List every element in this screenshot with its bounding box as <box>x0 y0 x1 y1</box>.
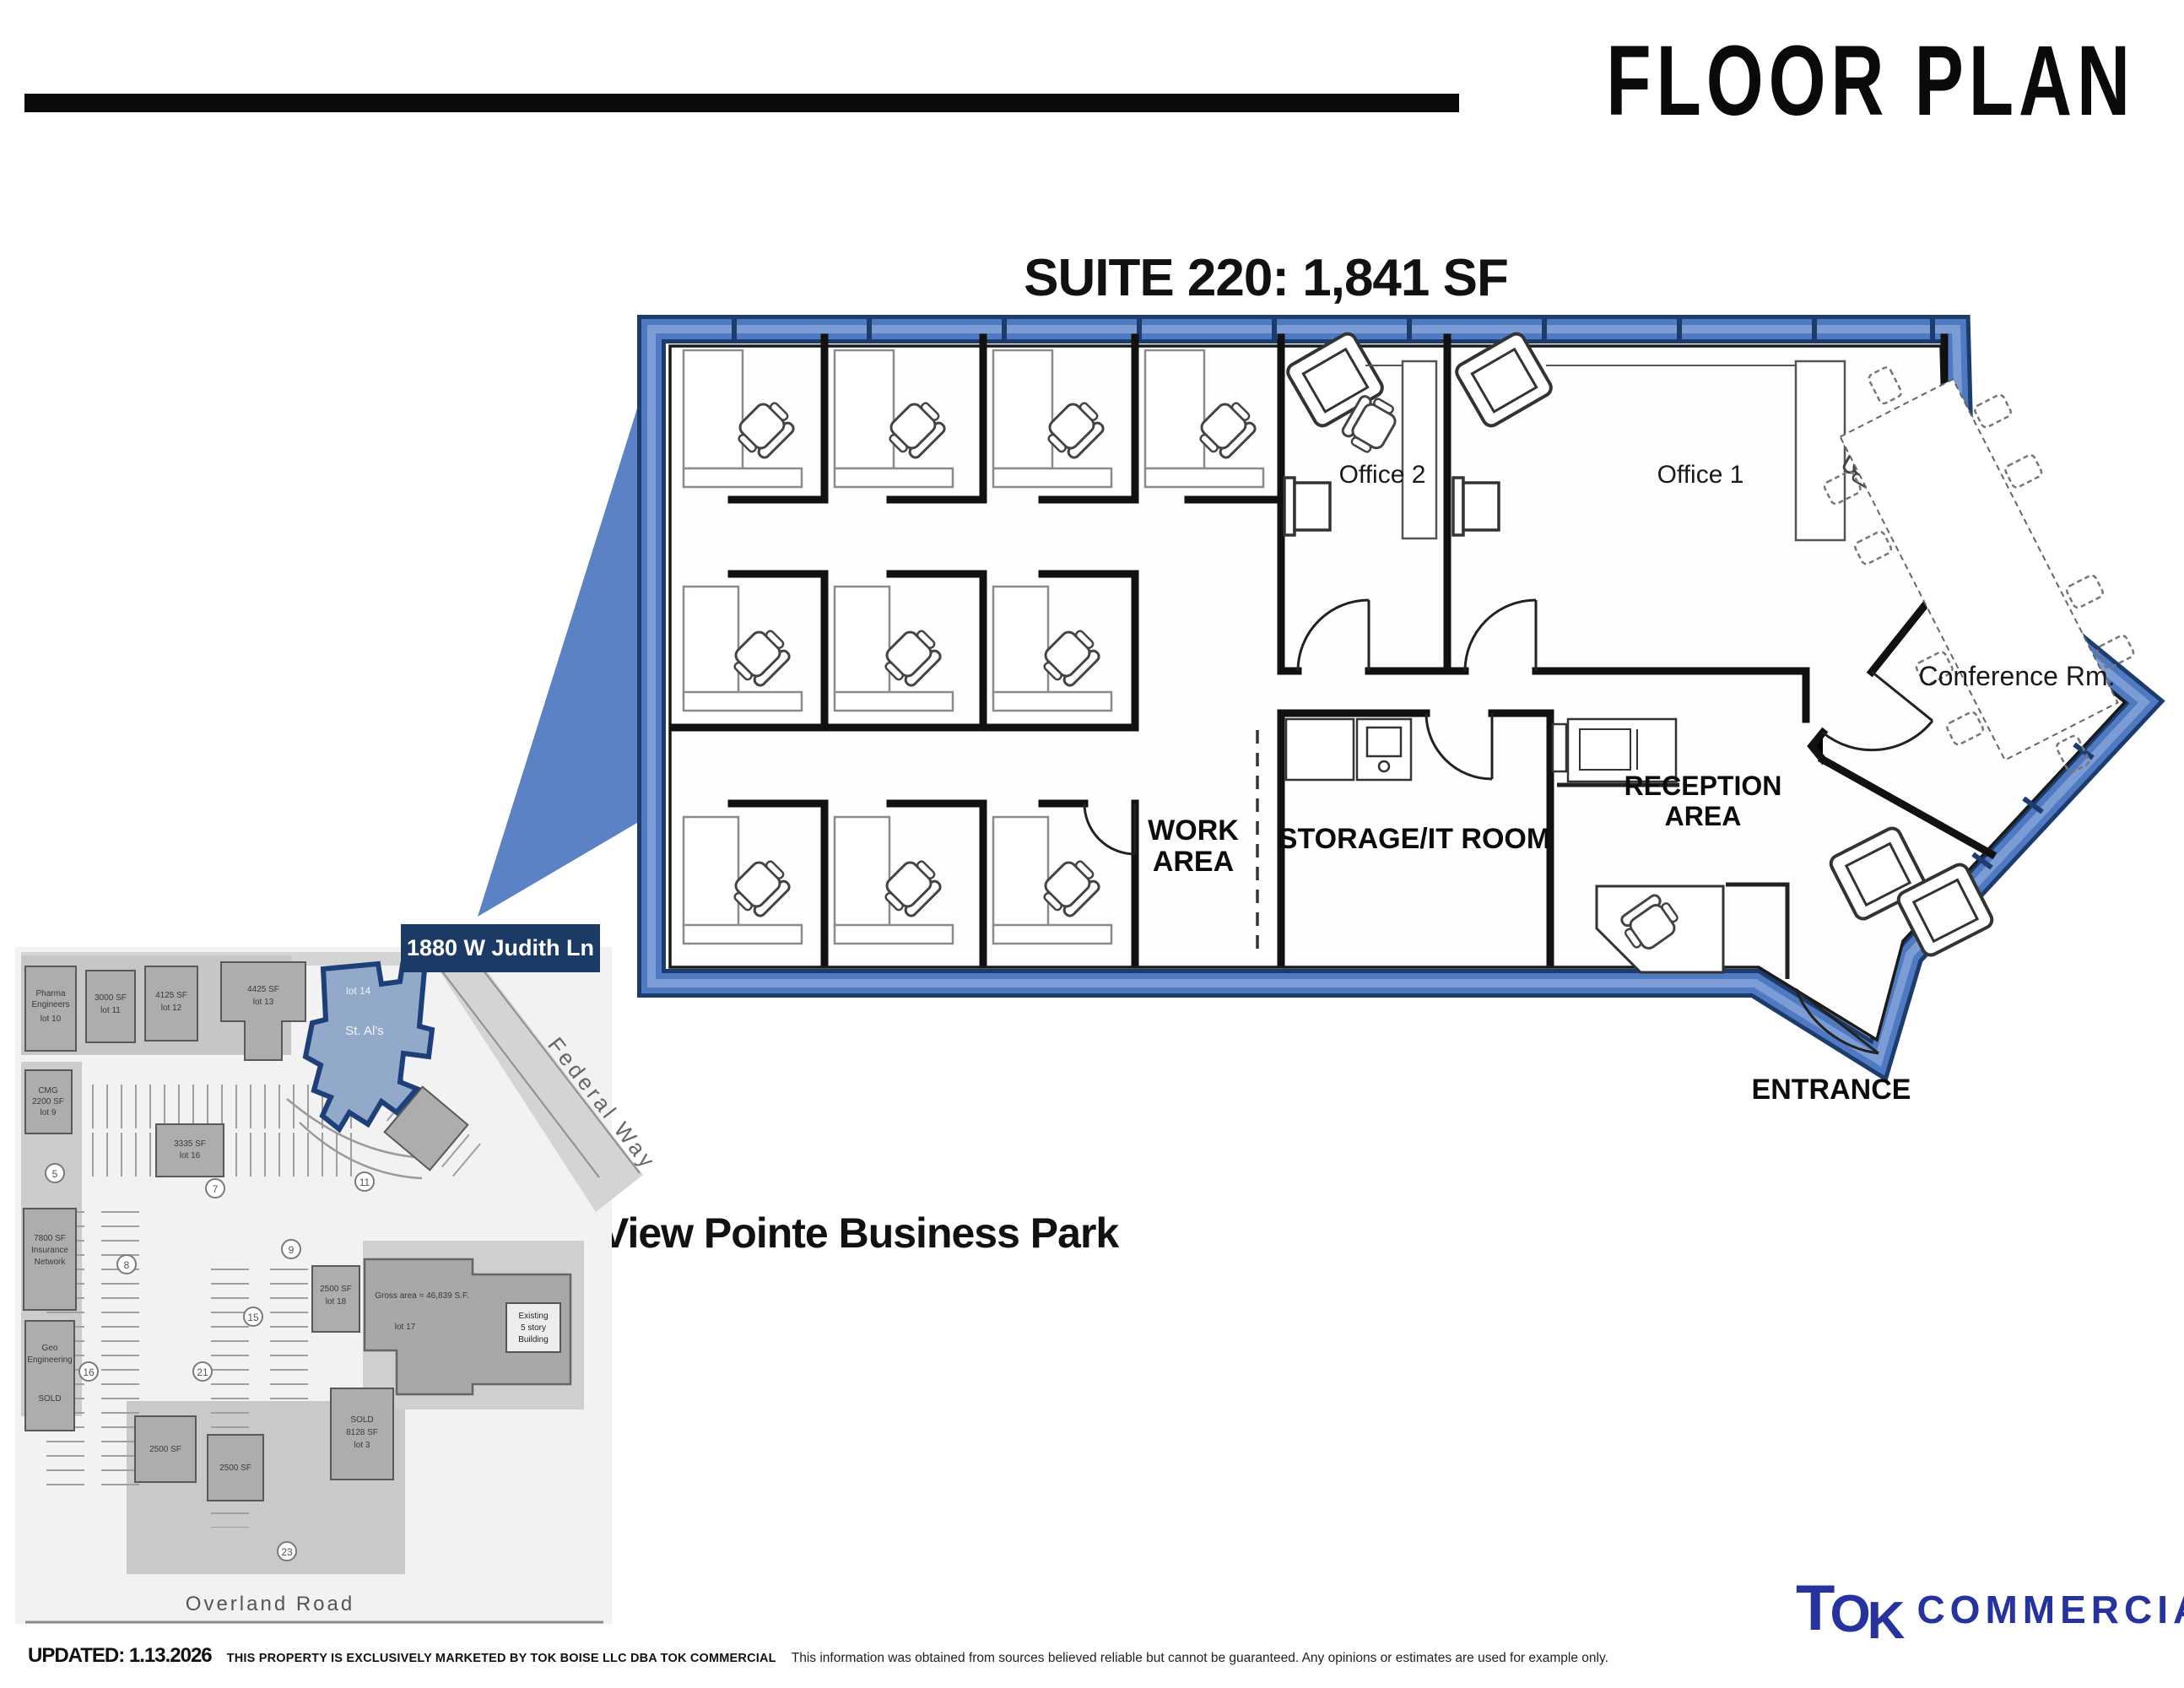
site-block-lot16 <box>156 1124 224 1177</box>
site-label: lot 10 <box>41 1014 62 1024</box>
site-label: SOLD <box>350 1415 373 1425</box>
site-label: Network <box>35 1258 67 1267</box>
existing-building-label: 5 story <box>521 1323 546 1333</box>
site-marker: 16 <box>83 1366 95 1378</box>
work-area-label-1: WORK <box>1148 814 1239 847</box>
site-label: lot 16 <box>180 1151 201 1160</box>
logo-letter-k: K <box>1868 1595 1906 1647</box>
site-label: lot 17 <box>395 1323 416 1332</box>
footer-disclaimer: UPDATED: 1.13.2026 THIS PROPERTY IS EXCL… <box>28 1644 1608 1668</box>
site-label: Engineers <box>31 1000 69 1009</box>
address-banner: 1880 W Judith Ln <box>401 924 600 972</box>
marketing-statement: THIS PROPERTY IS EXCLUSIVELY MARKETED BY… <box>227 1652 776 1665</box>
site-marker: 5 <box>52 1168 58 1180</box>
site-label: 2200 SF <box>32 1097 64 1106</box>
site-label: 3000 SF <box>95 993 127 1003</box>
site-label: Geo <box>42 1344 58 1353</box>
reception-label-2: AREA <box>1665 801 1742 831</box>
storage-label: STORAGE/IT ROOM <box>1279 823 1550 855</box>
site-label: 2500 SF <box>320 1285 352 1294</box>
reception-label-1: RECEPTION <box>1624 771 1782 801</box>
site-label: 8128 SF <box>346 1428 378 1437</box>
site-marker: 9 <box>289 1244 295 1256</box>
parcel-lot-label: lot 14 <box>346 985 371 997</box>
flyer-page: FLOOR PLAN SUITE 220: 1,841 SF View Poin… <box>0 0 2184 1688</box>
site-label: 2500 SF <box>219 1463 251 1473</box>
site-marker: 8 <box>124 1259 130 1271</box>
site-label: 4425 SF <box>247 985 279 994</box>
updated-date: UPDATED: 1.13.2026 <box>28 1644 212 1668</box>
zoom-callout-wedge <box>478 363 651 917</box>
site-label: SOLD <box>38 1394 61 1404</box>
floorplan-and-siteplan-graphic: Pharma Engineers lot 10 3000 SF lot 11 4… <box>0 0 2184 1688</box>
site-label: lot 18 <box>326 1297 347 1307</box>
site-label: 3335 SF <box>174 1139 206 1149</box>
suite-floorplan: Office 2 Office 1 Conference Rm. WORK AR… <box>651 319 2170 1106</box>
site-label: CMG <box>38 1086 58 1096</box>
legal-disclaimer: This information was obtained from sourc… <box>792 1651 1608 1666</box>
tok-commercial-logo: T O K COMMERCIAL.COM <box>1796 1577 2184 1647</box>
office1-label: Office 1 <box>1657 461 1744 489</box>
site-marker: 21 <box>197 1366 208 1378</box>
site-marker: 23 <box>281 1546 293 1558</box>
logo-letter-t: T <box>1796 1577 1830 1641</box>
site-label: lot 9 <box>41 1108 57 1117</box>
office2-label: Office 2 <box>1339 461 1426 489</box>
work-area-label-2: AREA <box>1153 846 1234 878</box>
site-label: Gross area = 46,839 S.F. <box>375 1291 468 1301</box>
site-label: lot 11 <box>100 1006 121 1015</box>
site-marker: 15 <box>247 1312 259 1323</box>
site-marker: 7 <box>213 1183 219 1195</box>
parcel-name-label: St. Al's <box>345 1024 383 1038</box>
site-label: 7800 SF <box>34 1234 66 1243</box>
site-marker: 11 <box>359 1177 370 1188</box>
existing-building-label: Existing <box>518 1312 548 1321</box>
conference-label: Conference Rm. <box>1919 661 2116 691</box>
existing-building-label: Building <box>518 1335 549 1344</box>
site-label: Pharma <box>35 989 65 998</box>
site-label: Insurance <box>31 1246 68 1255</box>
site-label: 2500 SF <box>149 1445 181 1454</box>
logo-wordmark: COMMERCIAL.COM <box>1916 1590 2184 1629</box>
site-plan: Pharma Engineers lot 10 3000 SF lot 11 4… <box>15 947 662 1624</box>
overland-road-label: Overland Road <box>186 1593 354 1615</box>
entrance-label: ENTRANCE <box>1752 1074 1911 1106</box>
site-label: lot 13 <box>253 998 274 1007</box>
logo-letter-o: O <box>1830 1588 1867 1641</box>
site-label: lot 3 <box>354 1441 370 1450</box>
storage-fixtures <box>1286 719 1411 780</box>
site-label: 4125 SF <box>155 991 187 1000</box>
address-banner-text: 1880 W Judith Ln <box>407 935 594 961</box>
site-label: Engineering <box>27 1355 72 1365</box>
site-block-lot7 <box>25 1321 74 1431</box>
site-label: lot 12 <box>161 1004 182 1013</box>
